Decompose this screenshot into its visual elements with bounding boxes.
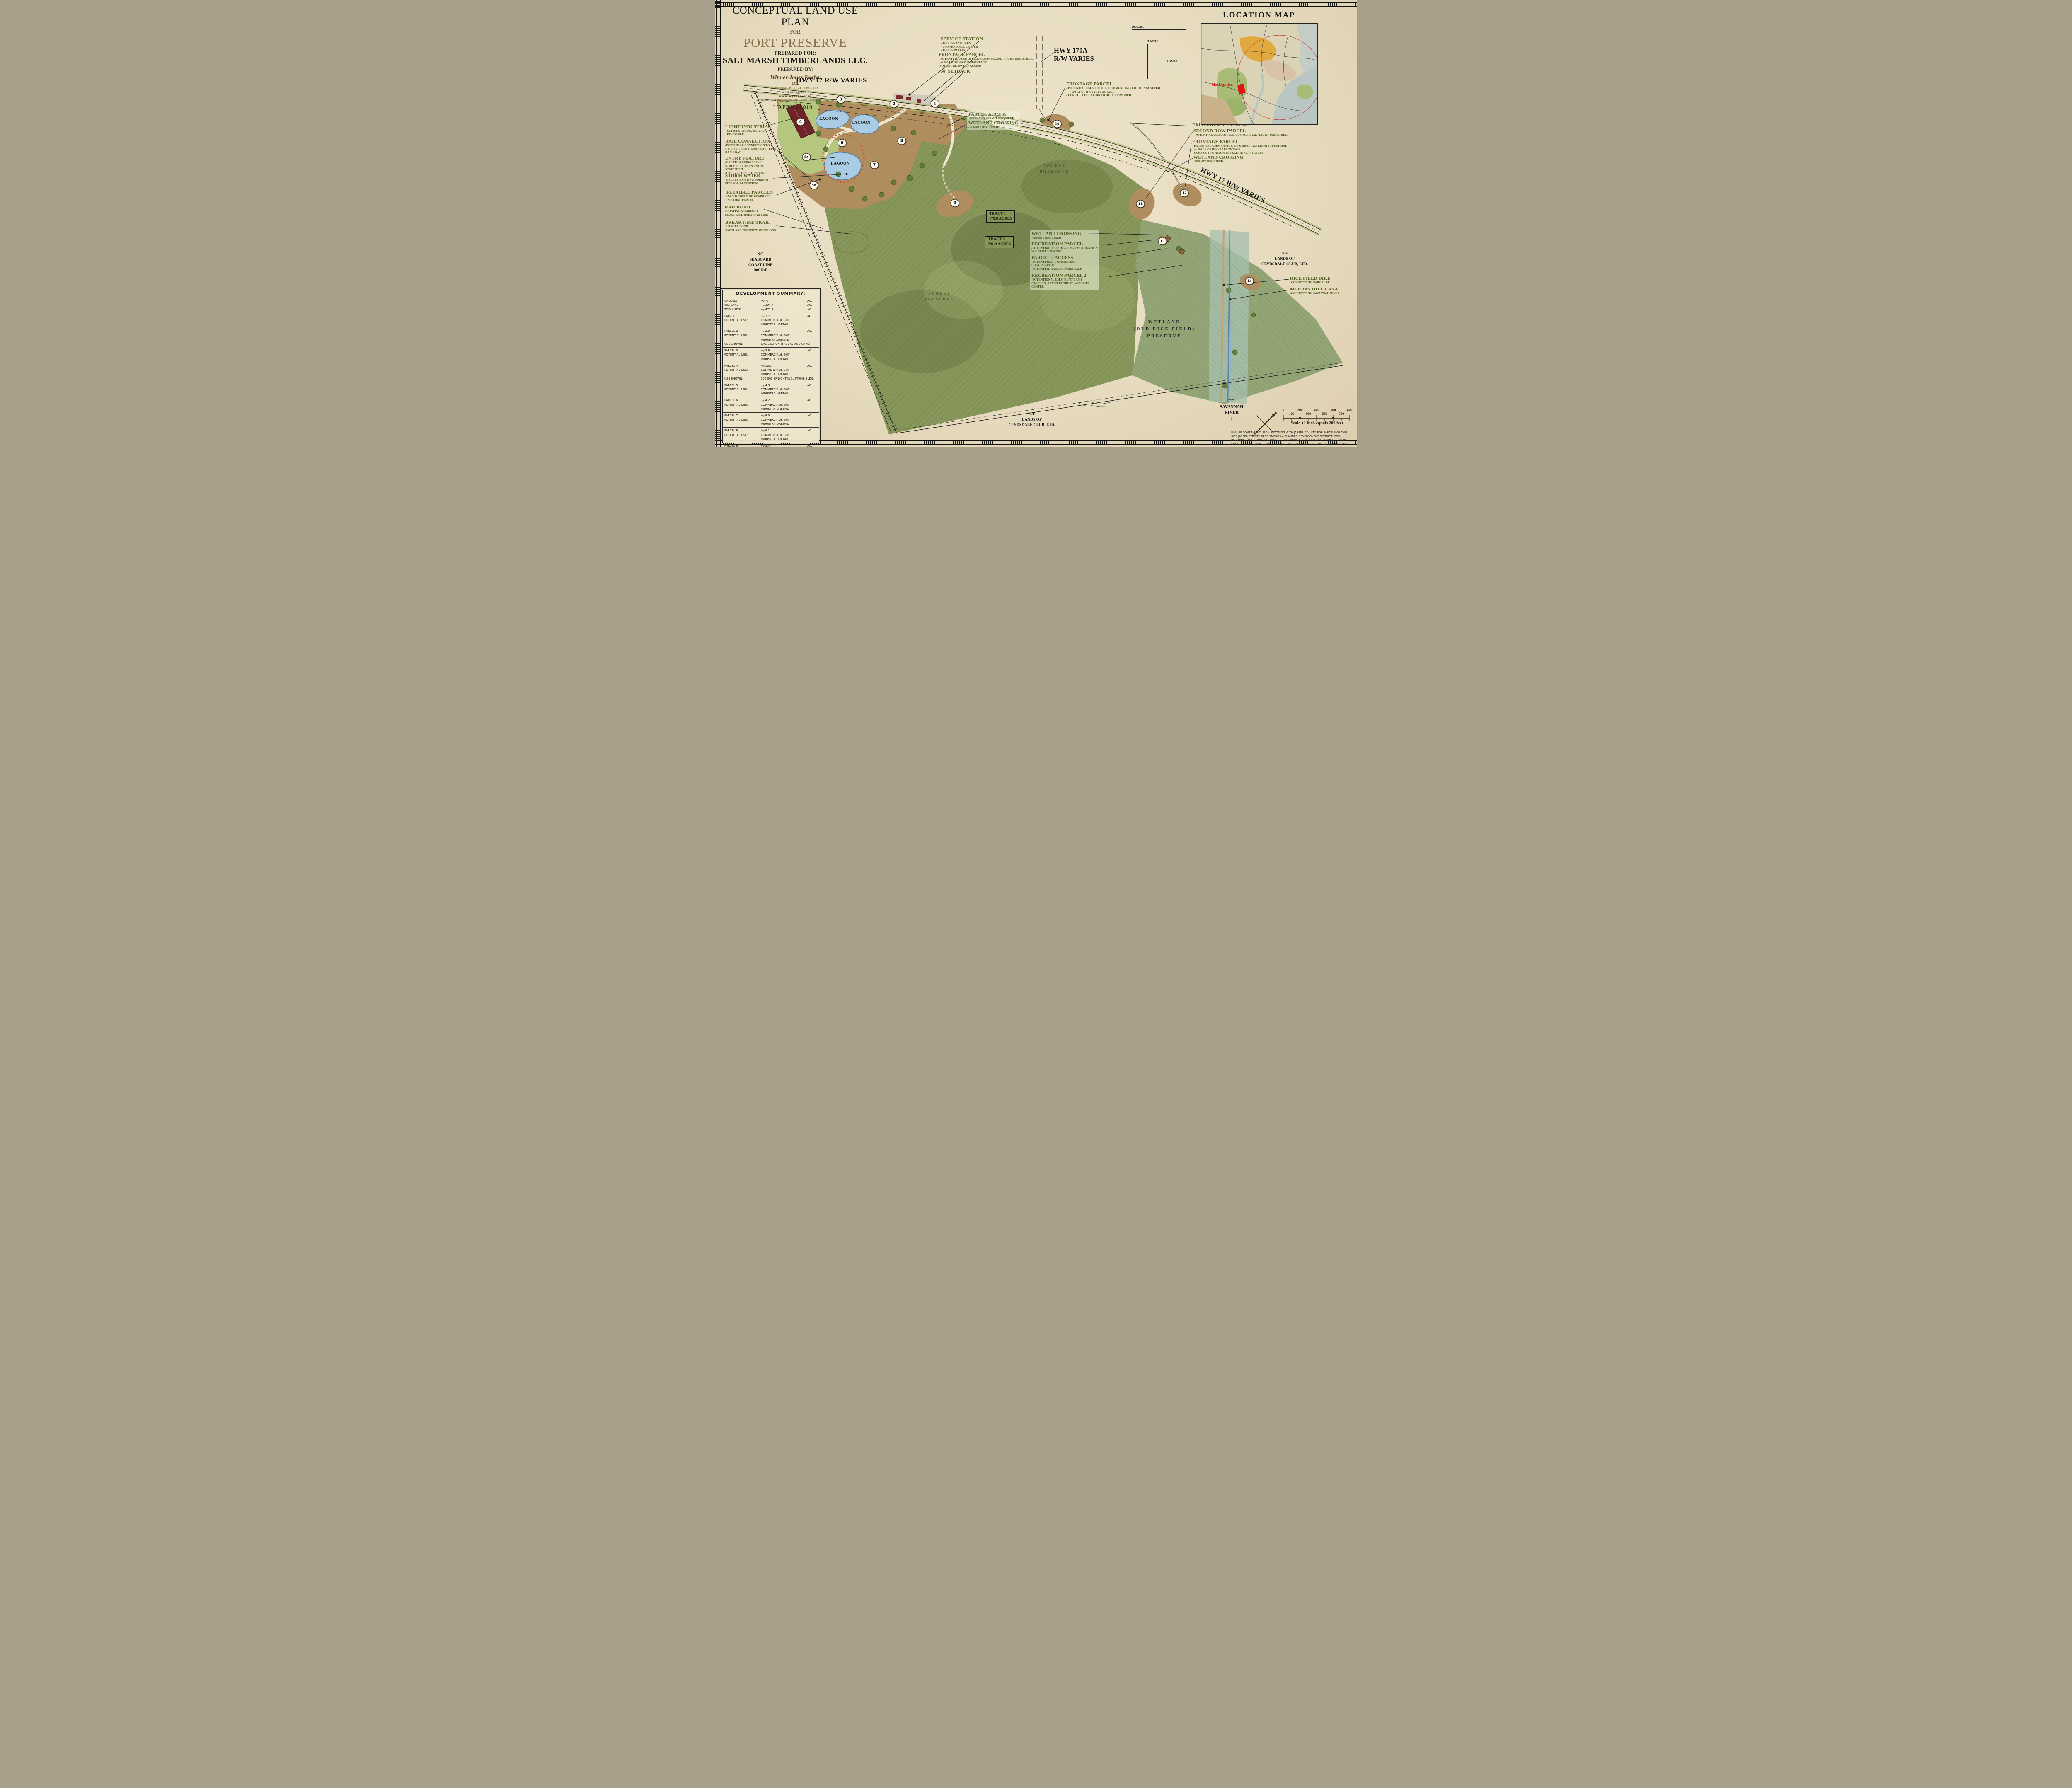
annotation-lines: -POTENTIAL CONNECTION TOEXISTING SEABOAR… xyxy=(725,144,776,154)
annotation-lines: -WETLAND PERMIT REQUIRED xyxy=(968,117,1018,120)
annotation-title: SERVICE STATION xyxy=(941,36,983,41)
table-cell: POTENTIAL USE: xyxy=(724,387,761,396)
annotation-title: PARCEL 2 ACCESS xyxy=(1031,255,1098,260)
text-line: STATEMENT xyxy=(725,168,765,171)
parcel-marker-7: 7 xyxy=(870,161,879,169)
parcel-marker-1: 1 xyxy=(931,100,939,108)
scale-tick-label: 600 xyxy=(1331,408,1336,412)
table-cell: GAS STATION (TRUCKS AND CARS) xyxy=(761,342,817,346)
annotation-setback: 50' SETBACK xyxy=(941,69,971,74)
table-cell: AC. xyxy=(807,364,817,368)
text-line: -POTENTAIL HWY. 17 ACCESS xyxy=(939,64,1034,68)
text-line: - CONVENIENCE CENTER xyxy=(941,45,983,48)
table-cell: AC. xyxy=(807,314,817,318)
text-line: SAVANNAH xyxy=(1215,404,1248,410)
annotation-title: RICE FIELD DIKE xyxy=(1290,276,1331,281)
annotation-railroad: RAILROAD -EXISTING SEABOARDCOAST LINE RA… xyxy=(725,205,768,217)
table-cell: 100,000 SF LIGHT INDUSTRIAL BLDG. xyxy=(761,377,817,381)
to-savannah-river-label: TOSAVANNAHRIVER ↓ xyxy=(1215,399,1248,421)
parcel-marker-9: 9 xyxy=(951,199,959,207)
text-line: - POTENTIAL USES: OFFICE/ COMMERCIAL / L… xyxy=(1193,133,1288,137)
table-cell: AC. xyxy=(807,348,817,353)
annotation-service-station: SERVICE STATION - TRUCKS AND CARS- CONVE… xyxy=(941,36,983,52)
forest-line: PRESERVE xyxy=(1037,169,1072,175)
table-row: POTENTIAL USE:COMMERCIAL/LIGHT INDUSTRAI… xyxy=(723,403,819,411)
text-line: - +/-700 LF OF HWY 17 FRONTAGE xyxy=(939,61,1034,64)
table-cell: PARCEL 7 xyxy=(724,414,761,418)
table-cell: PARCEL 2 xyxy=(724,329,761,333)
table-row: PARCEL 2+/-2.9AC. xyxy=(723,329,819,333)
text-line: SEABOARD xyxy=(744,257,777,263)
acre-1-box xyxy=(1167,63,1186,79)
annotation-title: ENTRY FEATURE xyxy=(725,156,765,161)
site-location-label: Site Location xyxy=(1212,82,1233,87)
wetland-preserve-label: WETLAND(OLD RICE FIELD)PRESERVE xyxy=(1131,319,1198,340)
table-cell: +/-3.7 xyxy=(761,314,807,318)
table-row: PARCEL 1+/-3.7AC. xyxy=(723,314,819,318)
text-line: STRUCTURE AS AN ENTRY xyxy=(725,165,765,168)
lagoon-label-1: LAGOON xyxy=(819,117,838,121)
parcel-section: PARCEL 8+/-6.1AC.POTENTIAL USE:COMMERCIA… xyxy=(723,428,819,443)
forest-line: FOREST xyxy=(1037,163,1072,169)
annotation-frontage-parcel-a: FRONTAGE PARCEL - POTENTIAL USES: OFFICE… xyxy=(939,52,1034,68)
parcel-section: PARCEL 6+/-4.2AC.POTENTIAL USE:COMMERCIA… xyxy=(723,397,819,413)
table-cell: AC. xyxy=(807,329,817,333)
parcel-marker-14: 14 xyxy=(1245,277,1254,285)
creek-squiggle xyxy=(1079,402,1118,407)
annotation-title: WETLAND CROSSING xyxy=(968,121,1018,126)
text-line: N/F xyxy=(1254,251,1316,256)
table-cell: +/-4.3 xyxy=(761,383,807,387)
text-line: -POTENTIALLY USE EXISTING xyxy=(1031,260,1098,264)
annotation-lines: -POTENTIAL USES: HUNTING EMBARKATIONWILD… xyxy=(1031,247,1098,254)
text-line: EXISTING SEABOARD COAST LINE xyxy=(725,148,776,151)
parcel-marker-8: 8 xyxy=(898,137,906,145)
table-cell: PARCEL 8 xyxy=(724,428,761,433)
firm-tagline-2: land planning xyxy=(719,91,871,94)
annotation-rail-connection: RAIL CONNECTION -POTENTIAL CONNECTION TO… xyxy=(725,139,776,155)
annotation-lines: - TRUCKS AND CARS- CONVENIENCE CENTER- T… xyxy=(941,41,983,52)
for-label: FOR xyxy=(719,29,871,35)
table-row: PARCEL 4+/-10.2AC. xyxy=(723,364,819,368)
savannah-line: TOSAVANNAHRIVER xyxy=(1215,399,1248,416)
annotation-lines: -EXISTING SEABOARDCOAST LINE RAILROAD LI… xyxy=(725,210,768,217)
table-cell: COMMERCIAL/LIGHT INDUSTRIAL/RETAIL xyxy=(761,334,817,342)
development-summary-title: DEVELOPMENT SUMMARY: xyxy=(723,290,819,298)
text-line: CLYDSDALE CLUB, LTD. xyxy=(1254,262,1316,267)
table-cell: +/-10.2 xyxy=(761,364,807,368)
table-cell: POTENTIAL USE: xyxy=(724,318,761,327)
annotation-title: RAIL CONNECTION xyxy=(725,139,776,144)
text-line: -PERMIT REQUIRED xyxy=(1193,160,1243,163)
table-cell: AC. xyxy=(807,398,817,402)
annotation-title: LIGHT INDUSTRIAL xyxy=(725,124,771,129)
annotation-title: WETLAND CROSSING xyxy=(1193,155,1243,160)
acre-10-label: 10 ACRE xyxy=(1132,25,1144,29)
title-block: CONCEPTUAL LAND USE PLAN FOR PORT PRESER… xyxy=(719,5,871,110)
prepared-by-label: PREPARED BY: xyxy=(719,66,871,72)
tract-acres: 179.8 ACRES xyxy=(989,216,1012,221)
table-cell: UPLAND: xyxy=(724,299,761,303)
forest-preserve-label-1: FOREST PRESERVE xyxy=(1037,163,1072,174)
text-line: CAMPING, ARTIST RETREAT, WILDLIFE xyxy=(1031,282,1098,285)
table-cell: PARCEL 4 xyxy=(724,364,761,368)
parcel-section: PARCEL 9+/-5.4AC.POTENTIAL USE:COMMERCIA… xyxy=(723,443,819,447)
table-cell: POTENTIAL USE: xyxy=(724,368,761,377)
annotation-wetland-crossing-right: WETLAND CROSSING -PERMIT REQUIRED xyxy=(1193,155,1243,164)
text-line: RIVER xyxy=(1215,410,1248,416)
development-summary-body: UPLAND:+/-77AC.WETLAND:+/-394.7AC.TOTAL … xyxy=(723,298,819,447)
tract-name: TRACT 2 xyxy=(988,237,1011,242)
text-line: - CURB CUT TO ALIGN W/ TELFAIR PLANTATIO… xyxy=(1192,151,1287,155)
text-line: -5A & B COULD BE COMBINED xyxy=(726,195,773,198)
annotation-murray-hill-canal: MURRAY HILL CANAL -CONNECTS TO SAVANNAH … xyxy=(1290,287,1341,295)
table-row: PARCEL 7+/-8.0AC. xyxy=(723,414,819,418)
table-cell: PARCEL 9 xyxy=(724,444,761,447)
hwy170a-label: HWY 170A R/W VARIES xyxy=(1054,46,1094,63)
annotation-lines: -CONNECTS TO PARCEL 14 xyxy=(1290,281,1331,284)
text-line: TO xyxy=(1215,399,1248,404)
table-cell: +/-5.4 xyxy=(761,444,807,447)
parcel-marker-13: 13 xyxy=(1158,237,1167,245)
rezoning-note: PLAN IS CONTINGENT UPON REZONING WITH JA… xyxy=(1231,431,1354,447)
annotation-light-industrial: LIGHT INDUSTRIAL - OFFICES FACING HYW. 1… xyxy=(725,124,771,136)
text-line: 100' R/R xyxy=(744,268,777,273)
table-row: POTENTIAL USE:COMMERCIAL/LIGHT INDUSTRAI… xyxy=(723,318,819,327)
wetland-preserve-area xyxy=(1131,220,1343,404)
table-cell: COMMERCIAL/LIGHT INDUSTRAIL/RETAIL xyxy=(761,368,817,377)
table-cell: AC. xyxy=(807,303,817,307)
text-line: -WETLAND PERMIT REQUIRED xyxy=(968,117,1018,120)
annotation-title: FLEXIBLE PARCELS xyxy=(726,190,773,195)
location-map-title: LOCATION MAP xyxy=(1201,11,1317,20)
annotation-lines: - POTENTIAL USES: OFFICE/ COMMERCIAL / L… xyxy=(939,57,1034,68)
table-row: POTENTIAL USE:COMMERCIAL/LIGHT INDUSTRAI… xyxy=(723,368,819,377)
annotation-title: RECREATION PARCEL 2 xyxy=(1031,273,1098,278)
table-cell: POTENTIAL USE: xyxy=(724,403,761,411)
text-line: - POTENTIAL USES: OFFICE/ COMMERCIAL / L… xyxy=(939,57,1034,60)
annotation-lines: - POTENTIAL USES: OFFICE/ COMMERCIAL / L… xyxy=(1193,133,1288,137)
firm-address: 14 Palmetto Way, Suite A ♦ Bluffton, Sou… xyxy=(719,99,871,102)
scale-tick-label: 800 xyxy=(1347,408,1353,412)
text-line: CENTER xyxy=(1031,285,1098,288)
acre-5-label: 5 ACRE xyxy=(1147,39,1158,43)
text-line: -UTILIZE EXISTING BORROW xyxy=(725,178,769,181)
parcel-marker-3: 3 xyxy=(837,96,845,104)
annotation-parcel-access: PARCEL ACCESS -WETLAND PERMIT REQUIRED W… xyxy=(967,111,1020,130)
hwy170a-road xyxy=(1036,36,1054,123)
firm-tagline-1: landscape architecture xyxy=(719,87,871,90)
parcel-section: PARCEL 3+/-2.6AC.POTENTIAL USE:COMMERCIA… xyxy=(723,348,819,363)
table-row: PARCEL 9+/-5.4AC. xyxy=(723,444,819,447)
forest-line: PRESERVE xyxy=(922,297,957,302)
table-cell: AC. xyxy=(807,428,817,433)
table-row: POTENTIAL USE:COMMERCIAL/LIGHT INDUSTRAI… xyxy=(723,387,819,396)
table-cell: POTENTIAL USE: xyxy=(724,433,761,442)
annotation-lines: -PERMIT REQUIRED xyxy=(968,126,1018,129)
nf-clydsdale-label-bottom: N/FLANDS OFCLYDSDALE CLUB, LTD. xyxy=(1001,412,1063,428)
forest-line: FOREST xyxy=(922,291,957,297)
table-row: USE SHOWN:100,000 SF LIGHT INDUSTRIAL BL… xyxy=(723,377,819,381)
text-line: - +/-600 LF OF HWY 17 FRONTAGE xyxy=(1066,90,1161,94)
annotation-entry-feature: ENTRY FEATURE -CREATE A BRIDGE LIKESTRUC… xyxy=(725,156,765,175)
table-cell: COMMERCIAL/LIGHT INDUSTRAIL/RETAIL xyxy=(761,387,817,396)
table-cell: +/-8.0 xyxy=(761,414,807,418)
plan-title: CONCEPTUAL LAND USE PLAN xyxy=(719,5,871,28)
table-cell: AC. xyxy=(807,414,817,418)
text-line: N/F xyxy=(1001,412,1063,417)
text-line: -CONNECTS TO SAVANNAH RIVER xyxy=(1290,292,1341,295)
table-cell: PARCEL 6 xyxy=(724,398,761,402)
table-row: PARCEL 3+/-2.6AC. xyxy=(723,348,819,353)
table-row: POTENTIAL USE:COMMERCIAL/LIGHT INDUSTRIA… xyxy=(723,334,819,342)
annotation-breaktime-trail: BREAKTIME TRAIL -1/3 MILE LOOP-WETLAND P… xyxy=(725,220,777,232)
table-cell: AC. xyxy=(807,444,817,447)
text-line: - TRUCK PARKING xyxy=(941,48,983,52)
table-cell: POTENTIAL USE: xyxy=(724,353,761,361)
scale-caption: Scale ♦1 inch equals 200 feet xyxy=(1283,421,1351,426)
parcel-section: PARCEL 5+/-4.3AC.POTENTIAL USE:COMMERCIA… xyxy=(723,382,819,398)
annotation-title: FRONTAGE PARCEL xyxy=(1066,82,1161,87)
table-cell: AC. xyxy=(807,383,817,387)
table-cell: PARCEL 5 xyxy=(724,383,761,387)
annotation-title: FRONTAGE PARCEL xyxy=(1192,139,1287,144)
text-line: - +/-800 LF OF HWY 17 FRONTAGE xyxy=(1192,148,1287,151)
table-row: POTENTIAL USE:COMMERCIAL/LIGHT INDUSTRAI… xyxy=(723,433,819,442)
text-line: -POTENTIONAL USES: HUNT CAMP xyxy=(1031,278,1098,281)
table-cell: COMMERCIAL/LIGHT INDUSTRAIL/RETAIL xyxy=(761,433,817,442)
table-cell: USE SHOWN: xyxy=(724,377,761,381)
acre-1-label: 1 ACRE xyxy=(1167,59,1177,63)
client-name: SALT MARSH TIMBERLANDS LLC. xyxy=(719,56,871,65)
parcel-marker-6: 6 xyxy=(838,139,847,147)
annotation-lines: -PERMIT REQUIRED xyxy=(1031,236,1098,240)
table-cell: PARCEL 3 xyxy=(724,348,761,353)
text-line: -PERMIT REQUIRED xyxy=(968,126,1018,129)
text-line: -1/3 MILE LOOP xyxy=(725,225,777,228)
scale-tick-label: 200 xyxy=(1297,408,1303,412)
text-line: LANDS OF xyxy=(1001,417,1063,423)
nf-clydsdale-label-right: N/FLANDS OFCLYDSDALE CLUB, LTD. xyxy=(1254,251,1316,267)
lagoon-label-3: LAGOON xyxy=(831,162,850,166)
parcel-section: PARCEL 2+/-2.9AC.POTENTIAL USE:COMMERCIA… xyxy=(723,328,819,348)
hwy170a-line1: HWY 170A xyxy=(1054,46,1094,55)
lagoon-label-2: LAGOON xyxy=(852,121,870,125)
table-cell: COMMERCIAL/LIGHT INDUSTRAIL/RETAIL xyxy=(761,403,817,411)
table-cell: +/-471.7 xyxy=(761,307,807,312)
annotation-lines: - POTENTIAL USES: OFFICE/ COMMERCIAL / L… xyxy=(1066,87,1161,97)
table-cell: COMMERCIAL/LIGHT INDUSTRAIL/RETAIL xyxy=(761,353,817,361)
parcel-section: PARCEL 7+/-8.0AC.POTENTIAL USE:COMMERCIA… xyxy=(723,413,819,428)
totals-section: UPLAND:+/-77AC.WETLAND:+/-394.7AC.TOTAL … xyxy=(723,298,819,313)
plan-date: APRIL, 2010 xyxy=(719,104,871,110)
forest-preserve-label-2: FOREST PRESERVE xyxy=(922,291,957,302)
table-cell: +/-2.6 xyxy=(761,348,807,353)
annotation-title: RECREATION PARCEL xyxy=(1031,242,1098,247)
table-row: PARCEL 5+/-4.3AC. xyxy=(723,383,819,387)
nf-seaboard-label: N/FSEABOARDCOAST LINE100' R/R xyxy=(744,252,777,273)
text-line: - DIVIDABLE xyxy=(725,133,771,136)
scale-bar: 0200400600800 100300500700 Scale ♦1 inch… xyxy=(1283,408,1351,429)
annotation-lines: - OFFICES FACING HYW. 17- DIVIDABLE xyxy=(725,129,771,136)
firm-website: www.wjkltd.com xyxy=(719,95,871,98)
annotation-title: RAILROAD xyxy=(725,205,768,210)
development-summary-table: DEVELOPMENT SUMMARY: UPLAND:+/-77AC.WETL… xyxy=(722,290,819,443)
scale-tick-label: 0 xyxy=(1283,408,1284,412)
annotation-frontage-parcel-b: FRONTAGE PARCEL - POTENTIAL USES: OFFICE… xyxy=(1066,82,1161,97)
table-cell: +/-2.9 xyxy=(761,329,807,333)
parcel-section: PARCEL 4+/-10.2AC.POTENTIAL USE:COMMERCI… xyxy=(723,363,819,382)
text-line: -CONNECTS TO PARCEL 14 xyxy=(1290,281,1331,284)
annotation-title: WETLAND CROSSING xyxy=(1031,231,1098,236)
table-cell: TOTAL SITE: xyxy=(724,307,761,312)
annotation-title: PARCEL ACCESS xyxy=(968,112,1018,117)
annotation-flexible-parcels: FLEXIBLE PARCELS -5A & B COULD BE COMBIN… xyxy=(726,190,773,202)
text-line: -PERMIT REQUIRED xyxy=(1031,236,1098,240)
table-cell: +/-6.1 xyxy=(761,428,807,433)
table-row: POTENTIAL USE:COMMERCIAL/LIGHT INDUSTRAI… xyxy=(723,418,819,426)
parcel-section: PARCEL 1+/-3.7AC.POTENTIAL USE:COMMERCIA… xyxy=(723,313,819,329)
tract2-label: TRACT 2 291.9 ACRES xyxy=(985,236,1014,248)
location-map-drawing xyxy=(1201,24,1318,125)
text-line: PRESERVE xyxy=(1131,333,1198,340)
annotation-lines: -PERMIT REQUIRED xyxy=(1193,160,1243,163)
text-line: -WETLAND PRESERVE OVERLOOK xyxy=(725,229,777,232)
text-line: -EXISTING SEABOARD xyxy=(725,210,768,213)
table-row: USE SHOWN:GAS STATION (TRUCKS AND CARS) xyxy=(723,342,819,346)
parcel-marker-10: 10 xyxy=(1053,120,1062,128)
table-row: TOTAL SITE:+/-471.7AC. xyxy=(723,307,819,312)
annotation-title: STORM WATER xyxy=(725,173,769,178)
table-cell: +/-77 xyxy=(761,299,807,303)
text-line: -POTENTIAL CONNECTION TO xyxy=(725,144,776,147)
table-cell: +/-4.2 xyxy=(761,398,807,402)
right-border-tape xyxy=(715,0,719,447)
annotation-lines: -5A & B COULD BE COMBINEDINTO ONE PARCEL xyxy=(726,195,773,202)
table-row: PARCEL 8+/-6.1AC. xyxy=(723,428,819,433)
annotation-lines: - POTENTIAL USES: OFFICE/ COMMERCIAL / L… xyxy=(1192,144,1287,155)
table-cell: AC. xyxy=(807,299,817,303)
annotation-frontage-parcel-c: FRONTAGE PARCEL - POTENTIAL USES: OFFICE… xyxy=(1192,139,1287,155)
table-cell: COMMERCIAL/LIGHT INDUSTRAIL/RETAIL xyxy=(761,418,817,426)
svg-text:N: N xyxy=(1275,411,1277,415)
text-line: WILDLIFE VIEWING xyxy=(1031,250,1098,253)
annotation-second-row-parcel: SECOND ROW PARCEL - POTENTIAL USES: OFFI… xyxy=(1193,128,1288,137)
annotation-lines: -POTENTIALLY USE EXISTINGLOGGING ROAD-PO… xyxy=(1031,260,1098,271)
table-cell: +/-394.7 xyxy=(761,303,807,307)
text-line: WETLAND xyxy=(1131,319,1198,326)
parcel-marker-12: 12 xyxy=(1180,189,1189,197)
text-line: COAST LINE RAILROAD LINE xyxy=(725,213,768,217)
parcel-marker-4: 4 xyxy=(796,118,805,126)
table-cell: POTENTIAL USE: xyxy=(724,418,761,426)
text-line: - POTENTIAL USES: OFFICE/ COMMERCIAL / L… xyxy=(1192,144,1287,148)
annotation-lines: -CREATE A BRIDGE LIKESTRUCTURE AS AN ENT… xyxy=(725,161,765,175)
annotation-title: BREAKTIME TRAIL xyxy=(725,220,777,225)
annotation-title: FRONTAGE PARCEL xyxy=(939,52,1034,57)
text-line: N/F xyxy=(744,252,777,257)
parcel-marker-5b: 5b xyxy=(810,181,818,189)
table-cell: PARCEL 1 xyxy=(724,314,761,318)
annotation-lines: -POTENTIONAL USES: HUNT CAMPCAMPING, ART… xyxy=(1031,278,1098,288)
annotation-recreation-block: WETLAND CROSSING -PERMIT REQUIRED RECREA… xyxy=(1030,230,1099,290)
tract-acres: 291.9 ACRES xyxy=(988,242,1011,247)
annotation-title: MURRAY HILL CANAL xyxy=(1290,287,1341,292)
table-row: UPLAND:+/-77AC. xyxy=(723,299,819,303)
text-line: - OFFICES FACING HYW. 17 xyxy=(725,129,771,133)
project-name: PORT PRESERVE xyxy=(719,36,871,50)
table-row: PARCEL 6+/-4.2AC. xyxy=(723,398,819,402)
text-line: COAST LINE xyxy=(744,263,777,268)
table-cell: COMMERCIAL/LIGHT INDUSTRAIL/RETAIL xyxy=(761,318,817,327)
text-line: (OLD RICE FIELD) xyxy=(1131,326,1198,333)
parcel-marker-11: 11 xyxy=(1136,200,1145,208)
parcel-marker-2: 2 xyxy=(890,100,898,108)
annotation-title: 50' SETBACK xyxy=(941,69,971,74)
table-cell: AC. xyxy=(807,307,817,312)
plan-sheet: CONCEPTUAL LAND USE PLAN FOR PORT PRESER… xyxy=(715,0,1357,447)
location-map-rule xyxy=(1199,22,1320,22)
parcel-marker-5a: 5a xyxy=(802,153,811,161)
text-line: -POTENTIAL RAISED BOARDWALK xyxy=(1031,267,1098,271)
text-line: - CURB CUT LOCATION TO BE DETERMINED xyxy=(1066,94,1161,97)
text-line: -CREATE A BRIDGE LIKE xyxy=(725,161,765,164)
table-cell: USE SHOWN: xyxy=(724,342,761,346)
annotation-title: SECOND ROW PARCEL xyxy=(1193,128,1288,133)
text-line: INTO ONE PARCEL xyxy=(726,198,773,202)
down-arrow-icon: ↓ xyxy=(1215,416,1248,421)
annotation-storm-water: STORM WATER -UTILIZE EXISTING BORROWPITS… xyxy=(725,173,769,185)
text-line: RAILROAD xyxy=(725,151,776,154)
text-line: - POTENTIAL USES: OFFICE/ COMMERCIAL / L… xyxy=(1066,87,1161,90)
table-cell: POTENTIAL USE: xyxy=(724,334,761,342)
table-row: WETLAND:+/-394.7AC. xyxy=(723,303,819,307)
text-line: PITS FOR DETENTION xyxy=(725,182,769,185)
text-line: LANDS OF xyxy=(1254,256,1316,262)
tract1-label: TRACT 1 179.8 ACRES xyxy=(986,210,1015,223)
table-cell: WETLAND: xyxy=(724,303,761,307)
text-line: LOGGING ROAD xyxy=(1031,264,1098,267)
hwy17-label-top: HWY 17 R/W VARIES xyxy=(796,76,867,85)
prepared-for-label: PREPARED FOR: xyxy=(719,50,871,56)
tract-name: TRACT 1 xyxy=(989,211,1012,216)
scale-tick-label: 400 xyxy=(1314,408,1319,412)
annotation-lines: -UTILIZE EXISTING BORROWPITS FOR DETENTI… xyxy=(725,178,769,185)
text-line: -POTENTIAL USES: HUNTING EMBARKATION xyxy=(1031,247,1098,250)
annotation-rice-field-dike: RICE FIELD DIKE -CONNECTS TO PARCEL 14 xyxy=(1290,276,1331,285)
annotation-lines: -CONNECTS TO SAVANNAH RIVER xyxy=(1290,292,1341,295)
annotation-lines: -1/3 MILE LOOP-WETLAND PRESERVE OVERLOOK xyxy=(725,225,777,232)
location-map: Site Location xyxy=(1201,23,1318,125)
table-row: POTENTIAL USE:COMMERCIAL/LIGHT INDUSTRAI… xyxy=(723,353,819,361)
text-line: CLYDSDALE CLUB, LTD. xyxy=(1001,423,1063,428)
text-line: - TRUCKS AND CARS xyxy=(941,41,983,45)
hwy170a-line2: R/W VARIES xyxy=(1054,55,1094,63)
